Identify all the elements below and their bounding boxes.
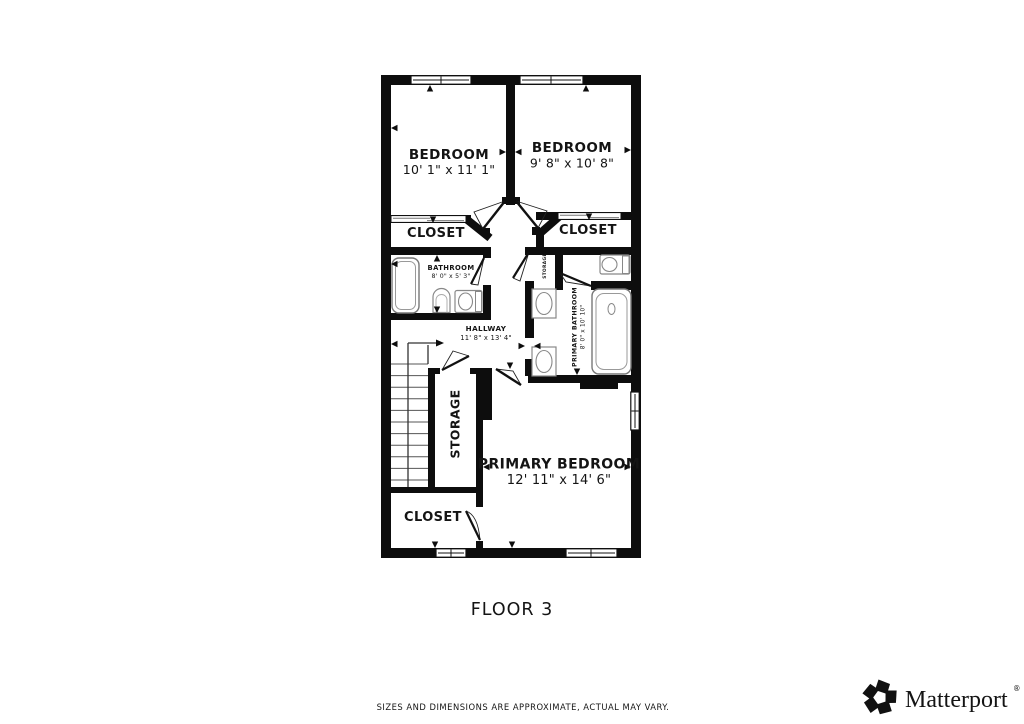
dimension-marker (574, 369, 580, 376)
room-label-storage: STORAGE (448, 389, 463, 458)
room-dims-bedroom-left: 10' 1" x 11' 1" (403, 162, 495, 177)
dimension-marker (515, 149, 522, 155)
dimension-marker (507, 363, 513, 370)
dimension-marker (500, 149, 507, 155)
dimension-marker (391, 341, 398, 347)
room-label-bathroom: BATHROOM (428, 264, 475, 272)
door-storage-small (513, 252, 529, 281)
matterport-pinwheel-icon (861, 680, 900, 718)
wall-segment (631, 75, 641, 558)
room-label-primary-bathroom: PRIMARY BATHROOM (572, 287, 579, 367)
door-closet-bottom (466, 511, 480, 540)
sliding-door (391, 216, 466, 223)
double-sink-icon (532, 289, 556, 376)
toilet-icon (600, 255, 630, 274)
wall-segment (476, 541, 483, 549)
room-label-bedroom-left: BEDROOM (409, 147, 489, 163)
room-label-primary-bedroom: PRIMARY BEDROOM (478, 457, 640, 473)
dimension-marker (432, 542, 438, 549)
dimension-marker (625, 147, 632, 153)
room-dims-primary-bathroom: 8' 0" x 10' 10" (581, 305, 587, 350)
room-label-closet-bottom: CLOSET (404, 510, 462, 525)
dimension-marker (583, 85, 589, 92)
dimension-marker (434, 255, 440, 262)
floor-plan-canvas: BEDROOM 10' 1" x 11' 1" BEDROOM 9' 8" x … (0, 0, 1024, 724)
wall-segment (580, 383, 618, 389)
wall-segment (506, 85, 515, 205)
dimension-marker (509, 542, 515, 549)
matterport-wordmark: Matterport (905, 687, 1008, 713)
disclaimer-text: SIZES AND DIMENSIONS ARE APPROXIMATE, AC… (377, 702, 670, 712)
wall-segment (483, 255, 491, 258)
floor-plan-page: BEDROOM 10' 1" x 11' 1" BEDROOM 9' 8" x … (0, 0, 1024, 724)
bathtub-icon (592, 289, 631, 374)
toilet-icon (455, 291, 482, 313)
dimension-marker (391, 125, 398, 131)
wall-segment (428, 368, 440, 374)
room-dims-primary-bedroom: 12' 11" x 14' 6" (507, 473, 611, 488)
dimension-marker (427, 85, 433, 92)
room-dims-hallway: 11' 8" x 13' 4" (460, 334, 512, 342)
wall-segment (476, 368, 483, 507)
wall-segment (381, 487, 483, 493)
room-label-bedroom-right: BEDROOM (532, 140, 612, 156)
door-toilet-alcove (560, 273, 591, 286)
wall-segment (381, 313, 491, 320)
registered-mark: ® (1013, 684, 1021, 693)
door-primary-bedroom (496, 369, 521, 385)
stair-direction-arrow (436, 340, 444, 347)
room-label-storage-small: STORAGE (542, 253, 548, 279)
room-label-closet-left: CLOSET (407, 226, 465, 241)
dimension-marker (519, 343, 526, 349)
room-label-closet-right: CLOSET (559, 223, 617, 238)
room-label-hallway: HALLWAY (466, 324, 507, 333)
wall-segment (381, 247, 491, 255)
matterport-logo: Matterport ® (861, 680, 1020, 718)
staircase (391, 340, 444, 488)
floor-title: FLOOR 3 (471, 600, 554, 620)
room-dims-bathroom: 8' 0" x 5' 3" (432, 273, 471, 280)
door-storage (442, 351, 469, 370)
wall-segment (428, 374, 435, 487)
room-dims-bedroom-right: 9' 8" x 10' 8" (530, 156, 614, 171)
wall-segment (470, 368, 477, 374)
